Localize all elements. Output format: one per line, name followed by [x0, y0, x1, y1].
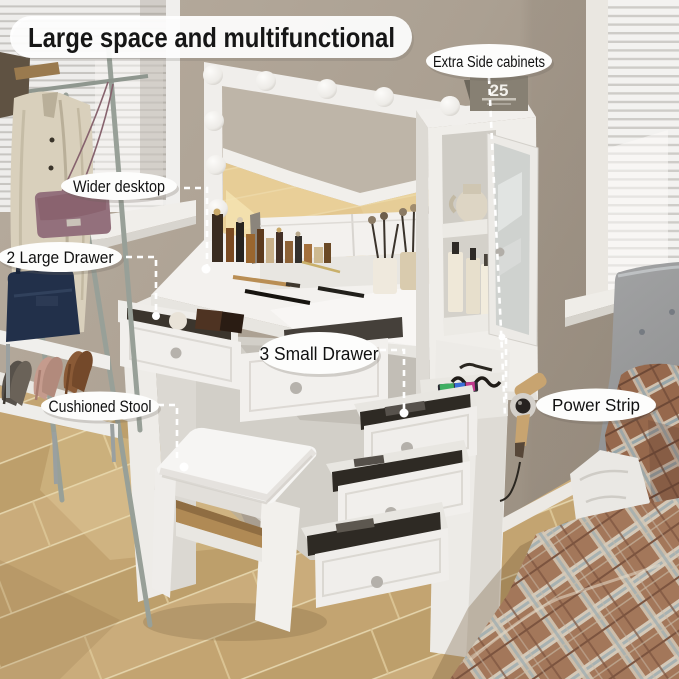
svg-text:Wider desktop: Wider desktop: [73, 178, 165, 196]
svg-text:Large space and multifunctiona: Large space and multifunctional: [28, 22, 395, 53]
svg-text:3 Small Drawer: 3 Small Drawer: [260, 343, 379, 364]
svg-text:Power Strip: Power Strip: [552, 395, 640, 415]
svg-text:25: 25: [490, 81, 509, 100]
svg-text:Extra Side cabinets: Extra Side cabinets: [433, 54, 545, 71]
svg-text:2 Large Drawer: 2 Large Drawer: [7, 248, 114, 267]
svg-text:Cushioned Stool: Cushioned Stool: [49, 398, 152, 416]
